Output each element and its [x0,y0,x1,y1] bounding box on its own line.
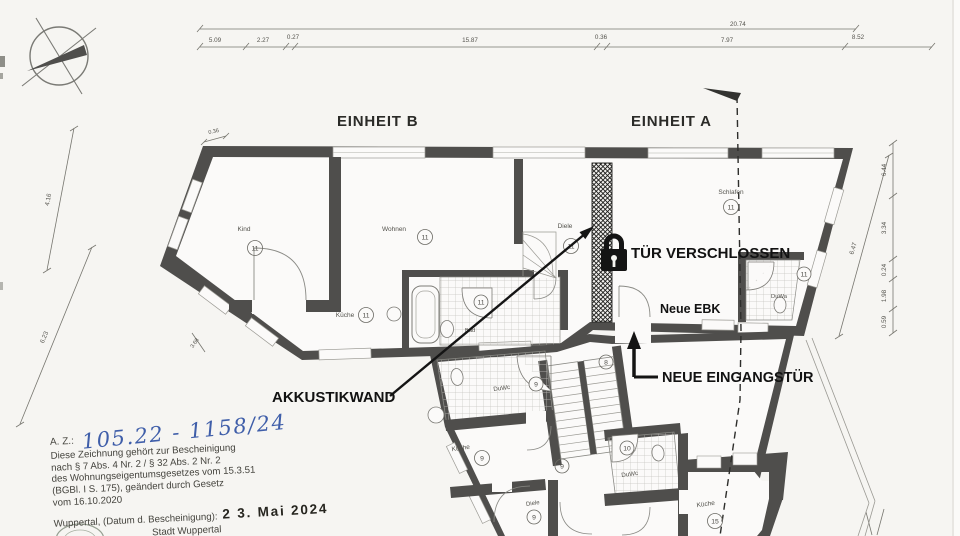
dim-right-5: 0.59 [881,315,888,328]
svg-text:9: 9 [560,464,564,471]
room-number-duwc10: 10 [620,441,634,455]
toilet [441,321,454,338]
dim-right-4: 1.98 [881,289,888,302]
dim-seg-1: 5.09 [209,37,222,44]
svg-text:11: 11 [362,313,369,320]
svg-text:11: 11 [477,300,484,307]
dim-seg-7: 8.52 [852,34,865,41]
dim-seg-6: 7.97 [721,37,734,44]
unit-b-title: EINHEIT B [337,113,418,130]
svg-text:9: 9 [534,382,538,389]
room-number-bad: 11 [474,295,488,309]
scanned-floor-plan: 20.74 5.09 2.27 0.27 15.87 0.36 7.97 8.5… [0,0,960,536]
svg-text:11: 11 [251,246,258,253]
room-label-duwa: DuWa [771,294,788,300]
svg-text:8: 8 [604,360,608,367]
dim-seg-4: 15.87 [462,37,478,44]
dim-right-2: 3.34 [881,221,888,234]
sink [387,307,401,321]
new-kitchen-label: Neue EBK [660,302,720,316]
svg-text:11: 11 [421,235,428,242]
unit-a-title: EINHEIT A [631,113,712,130]
dim-seg-3: 0.27 [287,34,300,41]
svg-text:11: 11 [800,272,807,279]
dim-top-total: 20.74 [730,21,746,28]
dim-seg-2: 2.27 [257,37,270,44]
room-label-kind: Kind [237,226,250,233]
certification-block: A. Z.: 105.22 - 1158/24 Diese Zeichnung … [49,410,400,536]
file-number-label: A. Z.: [50,436,74,450]
room-number-duwa: 11 [797,267,811,281]
room-number-duwc9: 9 [529,377,543,391]
svg-text:10: 10 [623,446,631,453]
room-label-kueche: Küche [336,312,355,319]
svg-text:15: 15 [711,519,719,526]
kind-door-gap [252,298,306,314]
bathroom-einheit-a [746,260,800,320]
dim-right-3: 0.24 [881,263,888,276]
room-label-wohnen: Wohnen [382,226,406,233]
dim-right-1: 6.44 [881,163,888,176]
svg-text:9: 9 [532,515,536,522]
paper-edge [954,0,960,536]
room-label-diele: Diele [558,223,573,230]
svg-text:11: 11 [727,205,734,212]
date-stamp: 2 3. Mai 2024 [222,502,328,519]
dim-seg-5: 0.36 [595,34,608,41]
room-label-schlafen: Schlafen [718,189,744,196]
acoustic-wall-label: AKKUSTIKWAND [272,389,395,406]
locked-door-label: TÜR VERSCHLOSSEN [631,245,790,262]
svg-text:9: 9 [480,456,484,463]
new-entrance-label: NEUE EINGANGSTÜR [662,369,814,386]
